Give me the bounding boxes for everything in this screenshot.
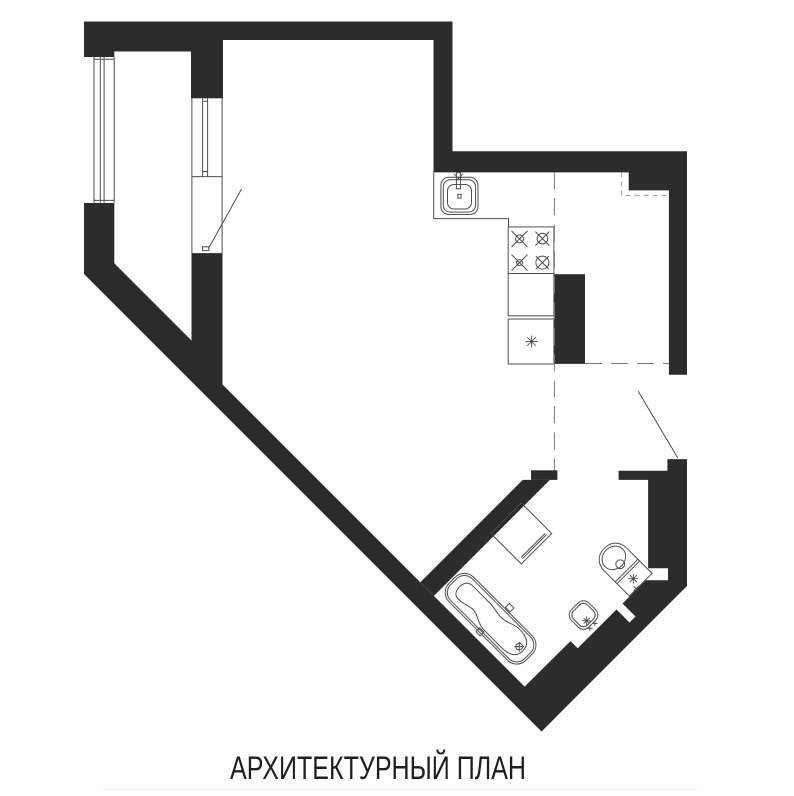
svg-text:АРХИТЕКТУРНЫЙ ПЛАН: АРХИТЕКТУРНЫЙ ПЛАН (230, 750, 526, 786)
